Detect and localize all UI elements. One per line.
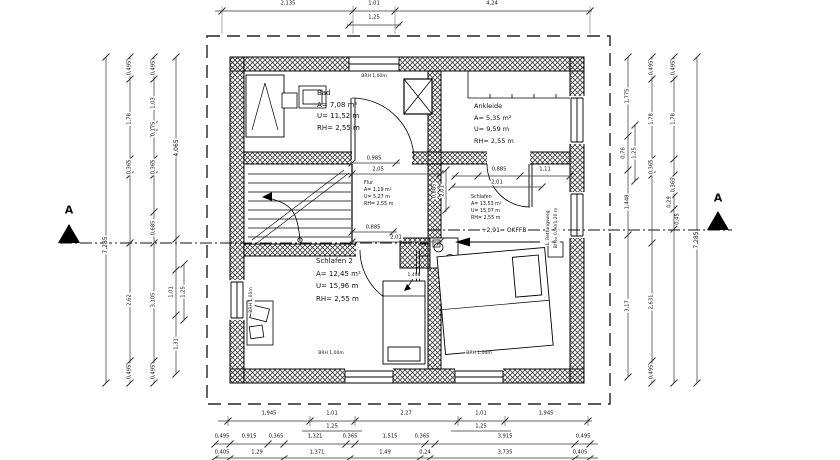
room-area: A= 13,53 m²	[471, 201, 502, 208]
dimension-label: 1,321	[307, 434, 324, 439]
room-label-bad: Bad A= 7,08 m² U= 11,52 m RH= 2,55 m	[317, 88, 360, 134]
room-perimeter: U= 5,27 m	[364, 194, 393, 201]
room-height: RH= 2,55 m	[364, 201, 393, 208]
dimension-label: 0,365	[127, 159, 132, 176]
section-marker-left: A	[65, 205, 74, 216]
dimension-label: 1,25	[181, 285, 186, 299]
room-area: A= 12,45 m²	[316, 268, 361, 281]
room-height: RH= 2,55 m	[474, 136, 514, 148]
dimension-label: 7,285	[103, 235, 109, 254]
bed-schlafen-2	[383, 281, 425, 364]
dimension-label: 2,135	[280, 1, 297, 6]
section-arrow-left-icon	[58, 224, 80, 243]
dimension-label: 0,495	[649, 364, 654, 381]
staircase	[248, 164, 352, 244]
sill-height-label: BRH 1,00m	[465, 352, 492, 357]
room-perimeter: U= 15,07 m	[471, 208, 502, 215]
dimension-label: 0,495	[649, 60, 654, 77]
dimension-label: 3,17	[625, 299, 630, 313]
dimension-label: 1,25	[632, 146, 637, 160]
dimension-label: 1,25	[325, 424, 339, 429]
bed-schlafen	[437, 247, 553, 354]
dimension-label: 4,065	[174, 138, 180, 157]
shower	[246, 75, 284, 137]
dimension-label: 1,03	[151, 96, 156, 110]
dimension-label: 1,01	[325, 411, 339, 416]
dimension-label: 2,01	[440, 184, 445, 198]
dimension-label: 0,885	[432, 183, 437, 200]
wardrobe	[468, 71, 570, 98]
room-name: Schlafen	[471, 194, 502, 201]
sill-height-label: BRH 1,00m	[250, 286, 255, 313]
stair-direction-arrow-icon	[262, 192, 272, 201]
floor-plan-canvas: 2,1351,014,241,251,9451,012,271,011,9451…	[0, 0, 840, 460]
dimension-label: 0,365	[268, 434, 285, 439]
dimension-label: 2,01	[389, 235, 403, 240]
room-area: A= 1,19 m²	[364, 187, 393, 194]
room-name: Bad	[317, 88, 360, 100]
dimension-label: 0,885	[365, 225, 382, 230]
sill-height-label: BRH 1,00m	[317, 352, 344, 357]
dimension-label: 1,775	[625, 88, 630, 105]
dimension-label: 0,45	[675, 212, 680, 226]
dimension-label: 1,945	[538, 411, 555, 416]
dimension-label: 1,31	[174, 337, 179, 351]
dimension-label: 1,25	[367, 15, 381, 20]
dimension-label: 1,49	[378, 450, 392, 455]
dimension-label: 1,29	[250, 450, 264, 455]
dimension-label: 0,915	[241, 434, 258, 439]
dimension-label: 1,515	[382, 434, 399, 439]
dimension-label: 0,495	[151, 364, 156, 381]
rescue-window-label: B/H= 0,90/1,20 m	[555, 208, 560, 249]
dimension-label: 2,01	[490, 180, 504, 185]
level-marker-arrow	[455, 238, 540, 247]
room-name: Schlafen 2	[316, 255, 361, 268]
dimension-label: 1,78	[671, 112, 676, 126]
room-height: RH= 2,55 m	[471, 215, 502, 222]
room-label-schlafen-2: Schlafen 2 A= 12,45 m² U= 15,96 m RH= 2,…	[316, 255, 361, 305]
dimension-label: 1,01	[367, 1, 381, 6]
dimension-label: 0,495	[214, 434, 231, 439]
dimension-label: 7,285	[694, 230, 700, 249]
dimension-label: 1,945	[261, 411, 278, 416]
shaft	[404, 79, 432, 114]
dimension-label: 1,371	[309, 450, 326, 455]
dimension-label: 4,24	[485, 1, 499, 6]
level-marker-label: +2,91= OKFFB	[482, 228, 527, 234]
dimension-label: 0,365	[649, 159, 654, 176]
dimension-label: 0,495	[151, 60, 156, 77]
dimension-label: 0,405	[214, 450, 231, 455]
room-area: A= 7,08 m²	[317, 100, 360, 112]
dimension-label: 1,498	[407, 274, 422, 279]
room-height: RH= 2,55 m	[317, 123, 360, 135]
dimension-label: 0,405	[572, 450, 589, 455]
dimension-label: 3,735	[497, 450, 514, 455]
room-perimeter: U= 11,52 m	[317, 111, 360, 123]
rescue-window-label: 1. Rettungsweg	[547, 210, 552, 245]
room-label-schlafen: Schlafen A= 13,53 m² U= 15,07 m RH= 2,55…	[471, 194, 502, 222]
dimension-label: 1,448	[625, 194, 630, 211]
dimension-label: 1,25	[474, 424, 488, 429]
dimension-label: 0,365	[414, 434, 431, 439]
dimension-label: 0,985	[366, 156, 383, 161]
room-label-flur: Flur A= 1,19 m² U= 5,27 m RH= 2,55 m	[364, 180, 393, 208]
dimension-label: 3,915	[497, 434, 514, 439]
dimension-label: 0,885	[491, 167, 508, 172]
dimension-label: 0,24	[418, 450, 432, 455]
room-name: Flur	[364, 180, 393, 187]
sill-height-label: BRH 1,00m	[360, 75, 387, 80]
dimension-label: 2,05	[371, 167, 385, 172]
dimension-label: 1,01	[169, 285, 174, 299]
room-perimeter: U= 9,59 m	[474, 124, 514, 136]
dimension-label: 0,495	[575, 434, 592, 439]
dimension-label: 0,365	[151, 159, 156, 176]
dimension-label: 0,495	[127, 60, 132, 77]
wc	[282, 93, 297, 108]
dimension-label: 0,495	[127, 364, 132, 381]
section-marker-right: A	[714, 193, 723, 204]
dimension-label: 0,365	[671, 177, 676, 194]
dimension-label: 0,365	[342, 434, 359, 439]
dimension-label: 0,76	[621, 146, 626, 160]
dimension-label: 2,27	[399, 411, 413, 416]
dimension-label: 2,631	[649, 294, 654, 311]
section-arrow-right-icon	[707, 211, 729, 230]
dimension-label: 1,78	[649, 112, 654, 126]
dimension-label: 1,01	[474, 411, 488, 416]
dimension-label: 0,495	[671, 60, 676, 77]
dimension-label: 0,29	[667, 195, 672, 209]
room-area: A= 5,35 m²	[474, 113, 514, 125]
room-label-ankleide: Ankleide A= 5,35 m² U= 9,59 m RH= 2,55 m	[474, 101, 514, 147]
dimension-label: 1,11	[538, 167, 552, 172]
dimension-label: 0,685	[151, 220, 156, 237]
room-name: Ankleide	[474, 101, 514, 113]
room-perimeter: U= 15,96 m	[316, 280, 361, 293]
dimension-label: 0,175	[151, 121, 156, 138]
dimension-label: 2,62	[127, 293, 132, 307]
dimension-label: 3,105	[151, 292, 156, 309]
dimension-label: 1,78	[127, 112, 132, 126]
dimension-lines	[103, 6, 701, 460]
room-height: RH= 2,55 m	[316, 293, 361, 306]
